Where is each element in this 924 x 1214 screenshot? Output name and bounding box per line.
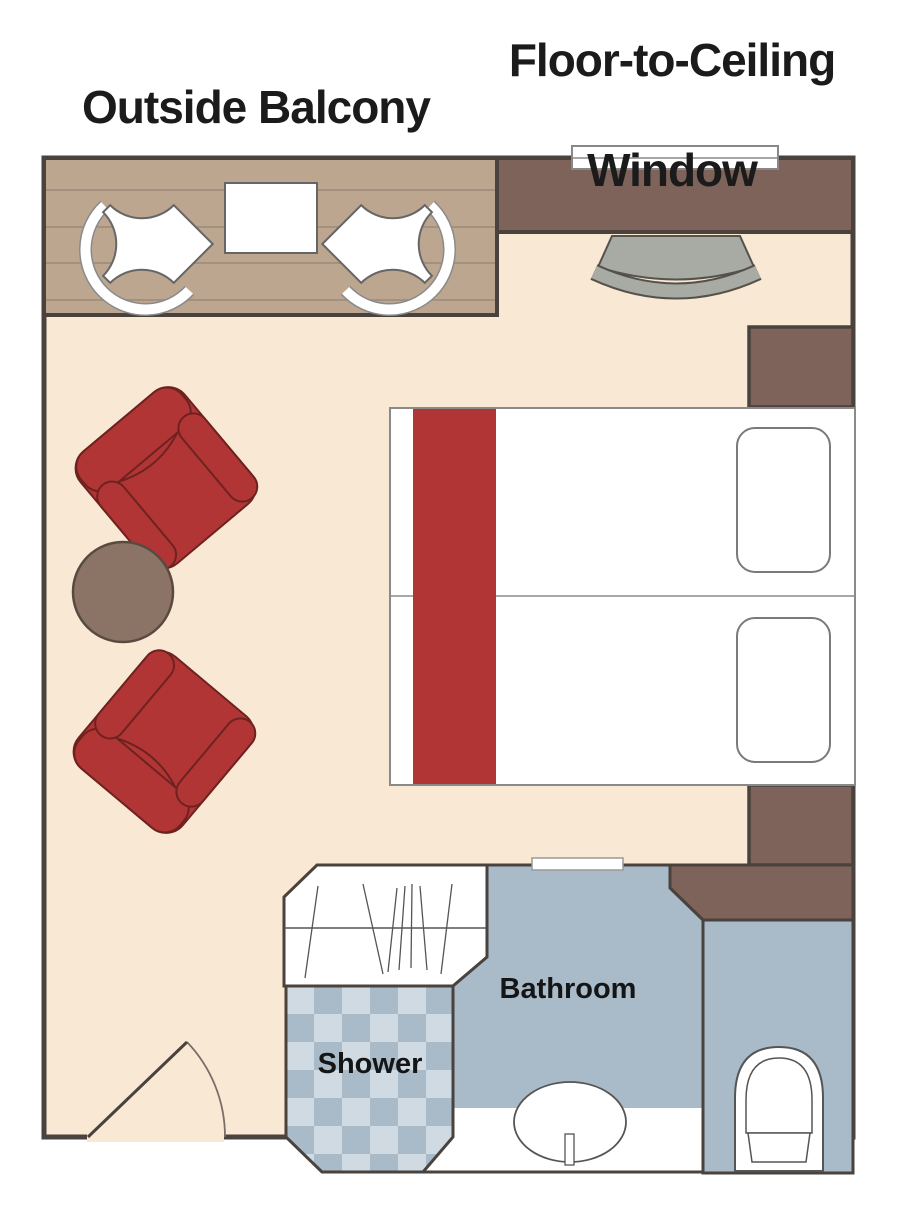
bed-runner [413,409,496,784]
toilet-compartment [703,920,853,1173]
window-title-line2: Window [587,144,757,196]
wardrobe-body [284,865,487,986]
floor-to-ceiling-window-title: Floor-to-Ceiling Window [440,33,904,198]
twin-beds [390,408,855,785]
door-opening [87,1132,224,1142]
round-side-table [73,542,173,642]
balcony-table [225,183,317,253]
window-title-line1: Floor-to-Ceiling [509,34,835,86]
bath-cabinet [670,865,853,920]
shower-label: Shower [290,1048,450,1081]
pillow-bottom-bed [737,618,830,762]
desk-chair-seat [598,236,754,280]
toilet-tank [748,1133,810,1162]
wardrobe [284,865,487,986]
bathroom-label: Bathroom [468,973,668,1006]
nightstand-bottom [749,785,853,865]
nightstand-top [749,327,853,407]
bathroom-door-threshold [532,858,623,870]
pillow-top-bed [737,428,830,572]
sink-faucet [565,1134,574,1165]
stateroom-floor-plan: Outside Balcony Floor-to-Ceiling Window … [0,0,924,1214]
balcony-area [44,158,497,315]
desk-chair [594,236,758,291]
outside-balcony-title: Outside Balcony [0,80,512,135]
toilet-bowl [746,1058,812,1133]
